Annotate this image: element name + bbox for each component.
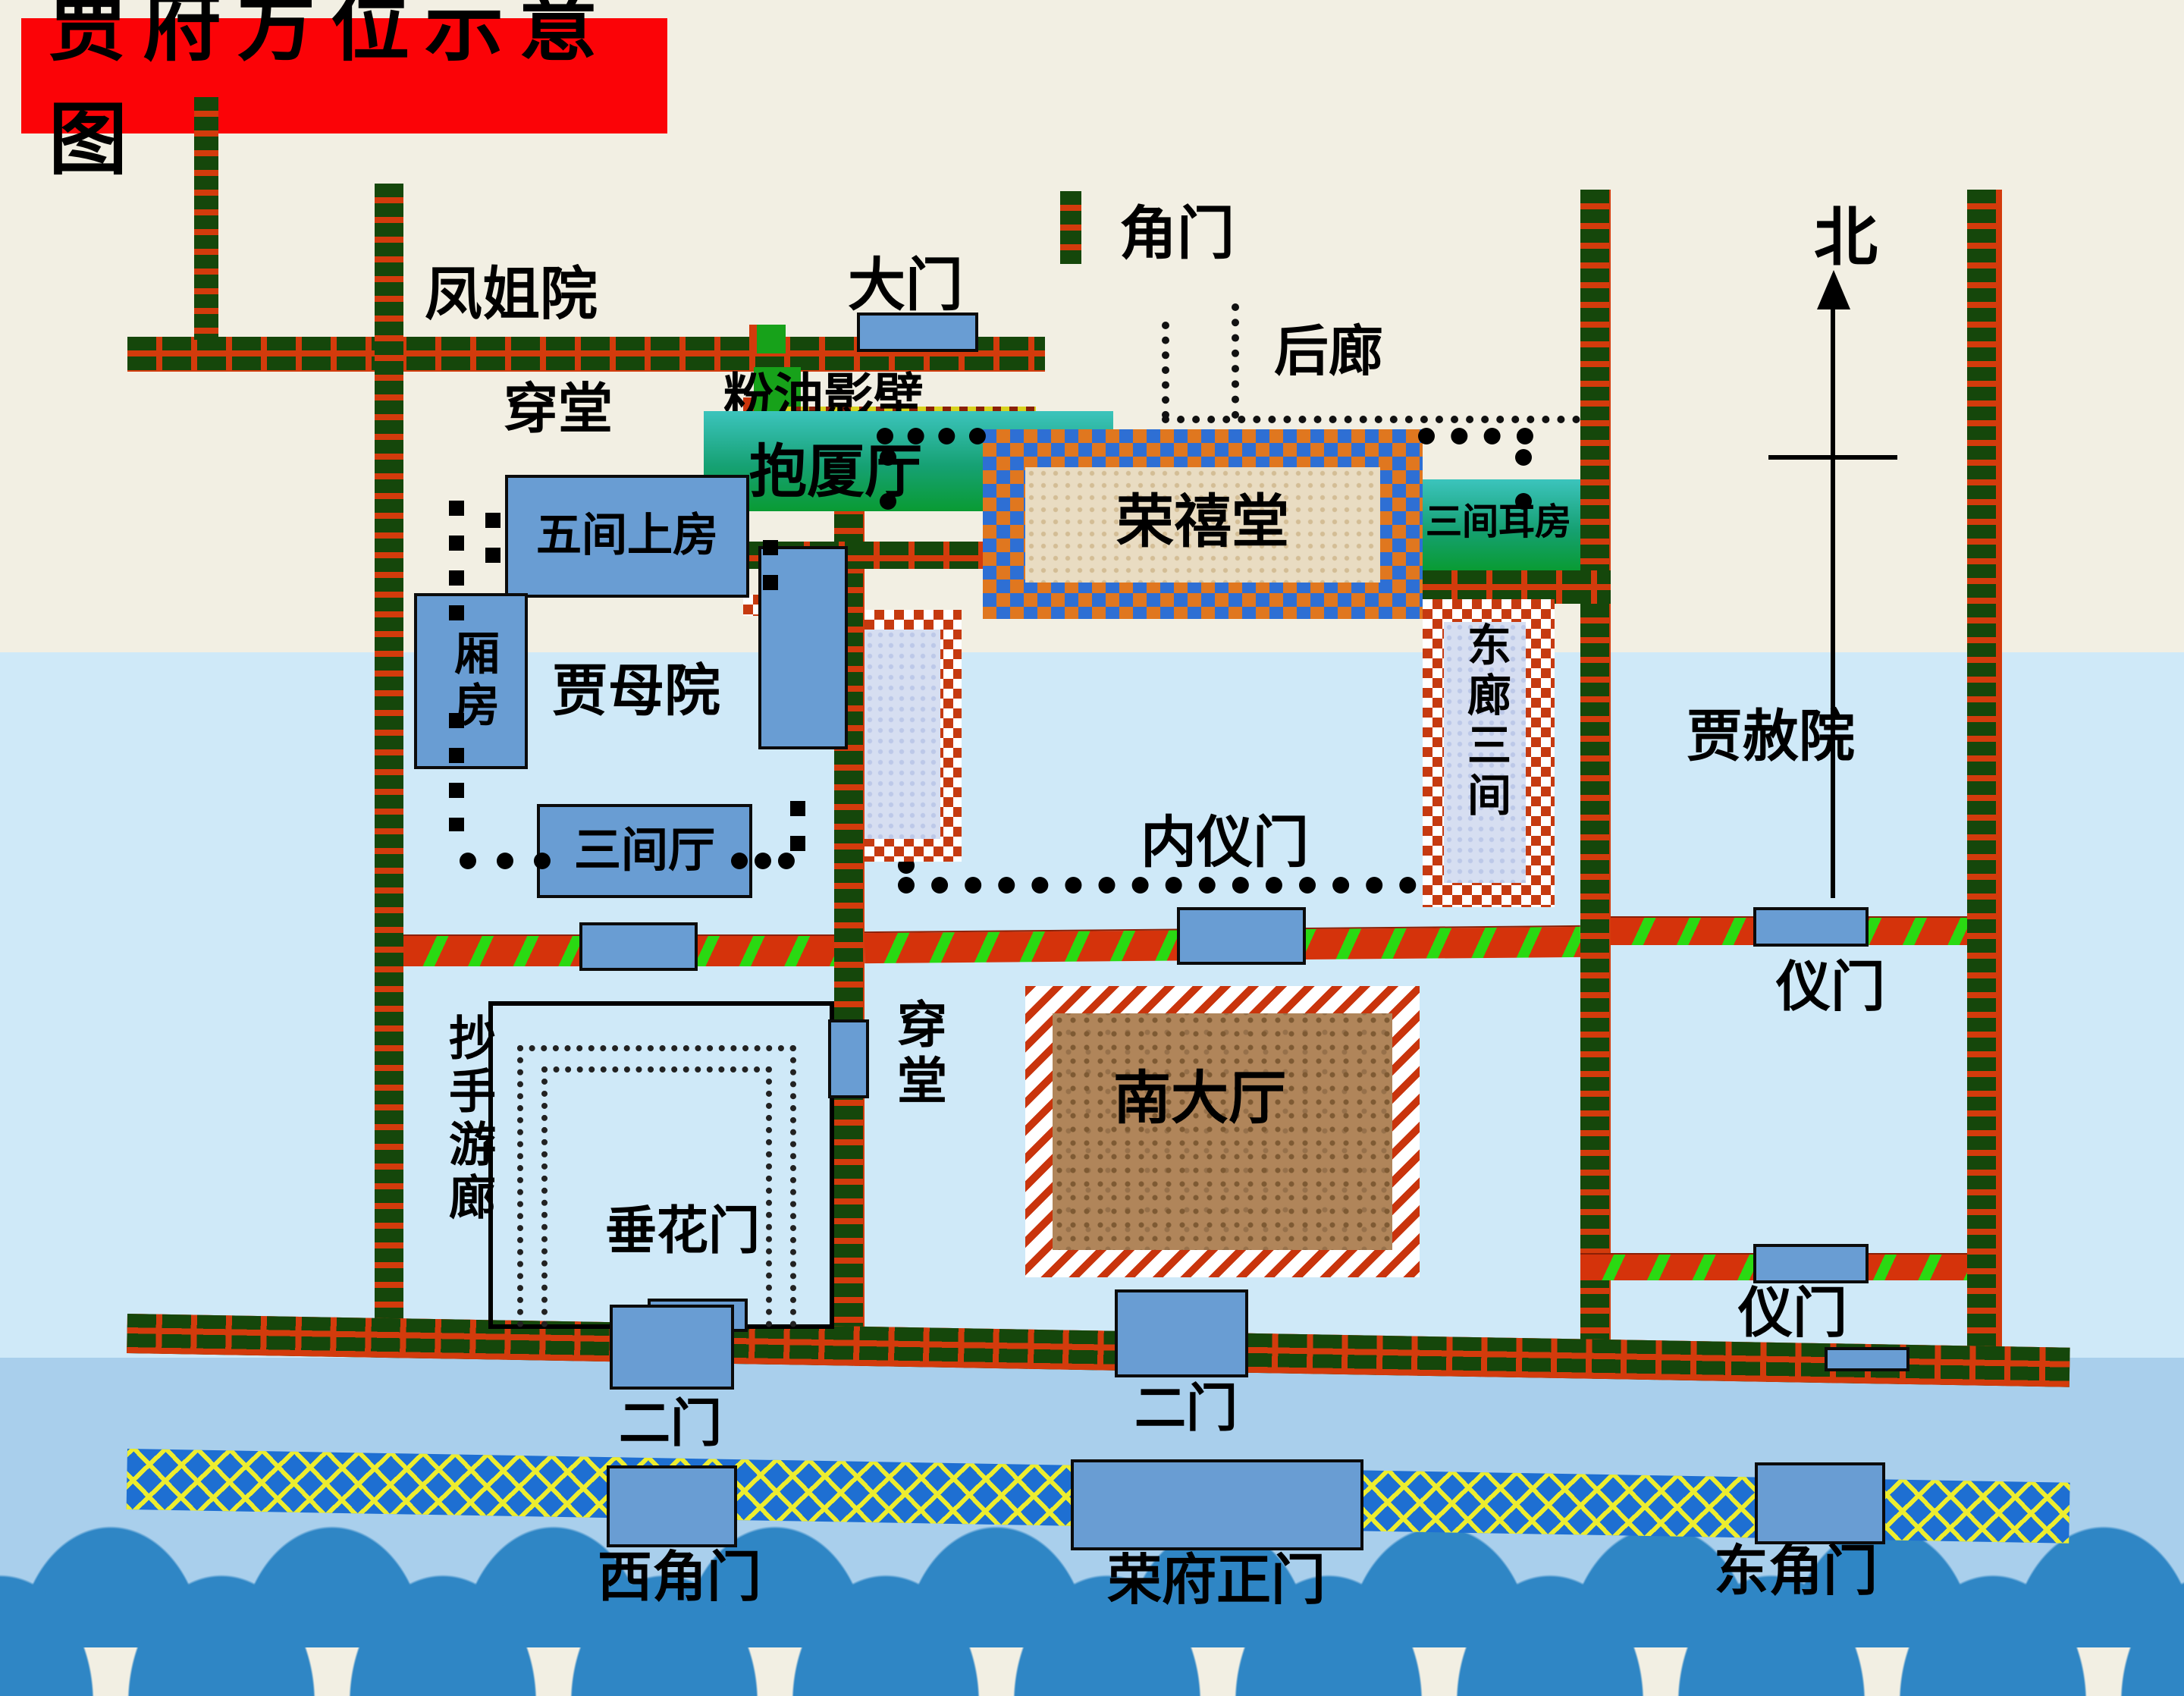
main-gate bbox=[857, 313, 978, 352]
ceremony-gate-lower-label: 仪门 bbox=[1738, 1286, 1847, 1344]
jiamu-dots-bottom-east bbox=[731, 853, 795, 869]
wall-northwest-stub bbox=[194, 97, 218, 340]
forecourt-dots-top-east bbox=[1418, 428, 1533, 444]
fengjie-court-label: 凤姐院 bbox=[425, 267, 598, 328]
rear-gallery-dotted-south bbox=[1162, 416, 1580, 423]
wall-west bbox=[375, 184, 403, 1347]
rear-gallery-dotted-east bbox=[1232, 303, 1239, 419]
festooned-gate-court: 垂花门 bbox=[488, 1001, 834, 1329]
corner-gate-label: 角门 bbox=[1119, 206, 1235, 267]
festooned-court-dotted-inner bbox=[541, 1066, 772, 1327]
second-gate-west-label: 二门 bbox=[619, 1399, 722, 1453]
inner-ceremony-gate bbox=[1177, 907, 1306, 965]
three-bay-hall-label: 三间厅 bbox=[574, 826, 715, 875]
five-bay-main-rooms: 五间上房 bbox=[505, 475, 749, 598]
rongxi-hall-frame: 荣禧堂 bbox=[983, 429, 1423, 619]
map-title-text: 贾府方位示意图 bbox=[49, 0, 667, 190]
west-colonnade-frame bbox=[864, 610, 962, 862]
south-hall-frame: 南大厅 bbox=[1025, 986, 1420, 1277]
rongxi-hall: 荣禧堂 bbox=[1025, 467, 1380, 583]
rongxi-hall-label: 荣禧堂 bbox=[1116, 495, 1289, 555]
compass-arrow-shaft bbox=[1831, 291, 1835, 898]
inner-ceremony-gate-label: 内仪门 bbox=[1141, 816, 1309, 875]
west-wing-room-label: 厢房 bbox=[438, 630, 504, 733]
rong-mansion-main-gate bbox=[1071, 1459, 1363, 1550]
east-colonnade-frame: 东廊三间 bbox=[1423, 599, 1555, 907]
wall-corner-gate-pier bbox=[1060, 191, 1081, 264]
forecourt-dots-top-west bbox=[877, 428, 986, 444]
rong-mansion-main-gate-label: 荣府正门 bbox=[1107, 1553, 1326, 1611]
east-wall-small-gate bbox=[1825, 1347, 1909, 1371]
west-corner-gate-label: 西角门 bbox=[598, 1550, 761, 1608]
compass-arrow-head bbox=[1817, 270, 1850, 309]
fragment-green-small bbox=[749, 325, 786, 353]
forecourt-dots-west-upper bbox=[880, 449, 896, 510]
second-gate-east bbox=[1115, 1289, 1248, 1377]
second-gate-west bbox=[610, 1305, 734, 1390]
ceremony-gate-lower bbox=[1753, 1244, 1869, 1283]
winding-gallery-label: 抄手游廊 bbox=[434, 1013, 502, 1332]
rear-gallery-label: 后廊 bbox=[1274, 325, 1383, 382]
west-wing-room: 厢房 bbox=[414, 593, 528, 769]
east-colonnade-label: 东廊三间 bbox=[1453, 622, 1517, 883]
forecourt-dots-east-upper bbox=[1515, 449, 1532, 510]
jiamu-dash-col-ne bbox=[763, 540, 778, 607]
jiamu-court-label: 贾母院 bbox=[552, 664, 720, 724]
map-title: 贾府方位示意图 bbox=[21, 18, 667, 133]
compass-crossbar bbox=[1768, 455, 1897, 460]
south-hall: 南大厅 bbox=[1053, 1013, 1392, 1250]
second-gate-east-label: 二门 bbox=[1134, 1383, 1238, 1437]
five-bay-main-rooms-label: 五间上房 bbox=[536, 513, 718, 561]
jiamu-dash-col-nw bbox=[449, 501, 464, 622]
wall-east-inner bbox=[1580, 190, 1611, 1347]
jiamu-dash-col-nw2 bbox=[485, 513, 500, 579]
ear-rooms-label: 三间耳房 bbox=[1426, 506, 1571, 544]
ceremony-gate-upper-label: 仪门 bbox=[1776, 960, 1885, 1018]
wall-east-outer bbox=[1967, 190, 2002, 1373]
jiashe-court-label: 贾赦院 bbox=[1687, 710, 1855, 769]
rear-gallery-dotted-west bbox=[1162, 322, 1169, 419]
jia-mansion-map: 贾府方位示意图 后廊 凤姐院 穿堂 大门 角门 粉油影壁 抱厦厅 三间耳房 荣 bbox=[0, 0, 2184, 1638]
festooned-gate-label: 垂花门 bbox=[605, 1206, 760, 1260]
west-corner-gate bbox=[607, 1465, 737, 1547]
west-colonnade bbox=[864, 630, 940, 839]
north-passage-label: 穿堂 bbox=[504, 382, 613, 440]
three-bay-hall: 三间厅 bbox=[537, 804, 752, 898]
south-passage-label: 穿堂 bbox=[880, 998, 952, 1165]
east-corner-gate-label: 东角门 bbox=[1714, 1544, 1878, 1602]
ear-rooms: 三间耳房 bbox=[1417, 479, 1580, 570]
jiamu-dash-col-sw bbox=[449, 713, 464, 831]
east-colonnade: 东廊三间 bbox=[1444, 622, 1526, 883]
east-corner-gate bbox=[1755, 1462, 1885, 1544]
main-gate-label: 大门 bbox=[848, 258, 963, 319]
jiamu-dots-bottom-west bbox=[460, 853, 551, 869]
jiamu-south-gate bbox=[579, 922, 698, 971]
south-hall-label: 南大厅 bbox=[1113, 1071, 1392, 1132]
compass-north-label: 北 bbox=[1814, 206, 1878, 273]
south-passage-door bbox=[828, 1019, 869, 1098]
ceremony-gate-upper bbox=[1753, 907, 1869, 947]
wave-pattern-base bbox=[0, 1611, 2184, 1638]
